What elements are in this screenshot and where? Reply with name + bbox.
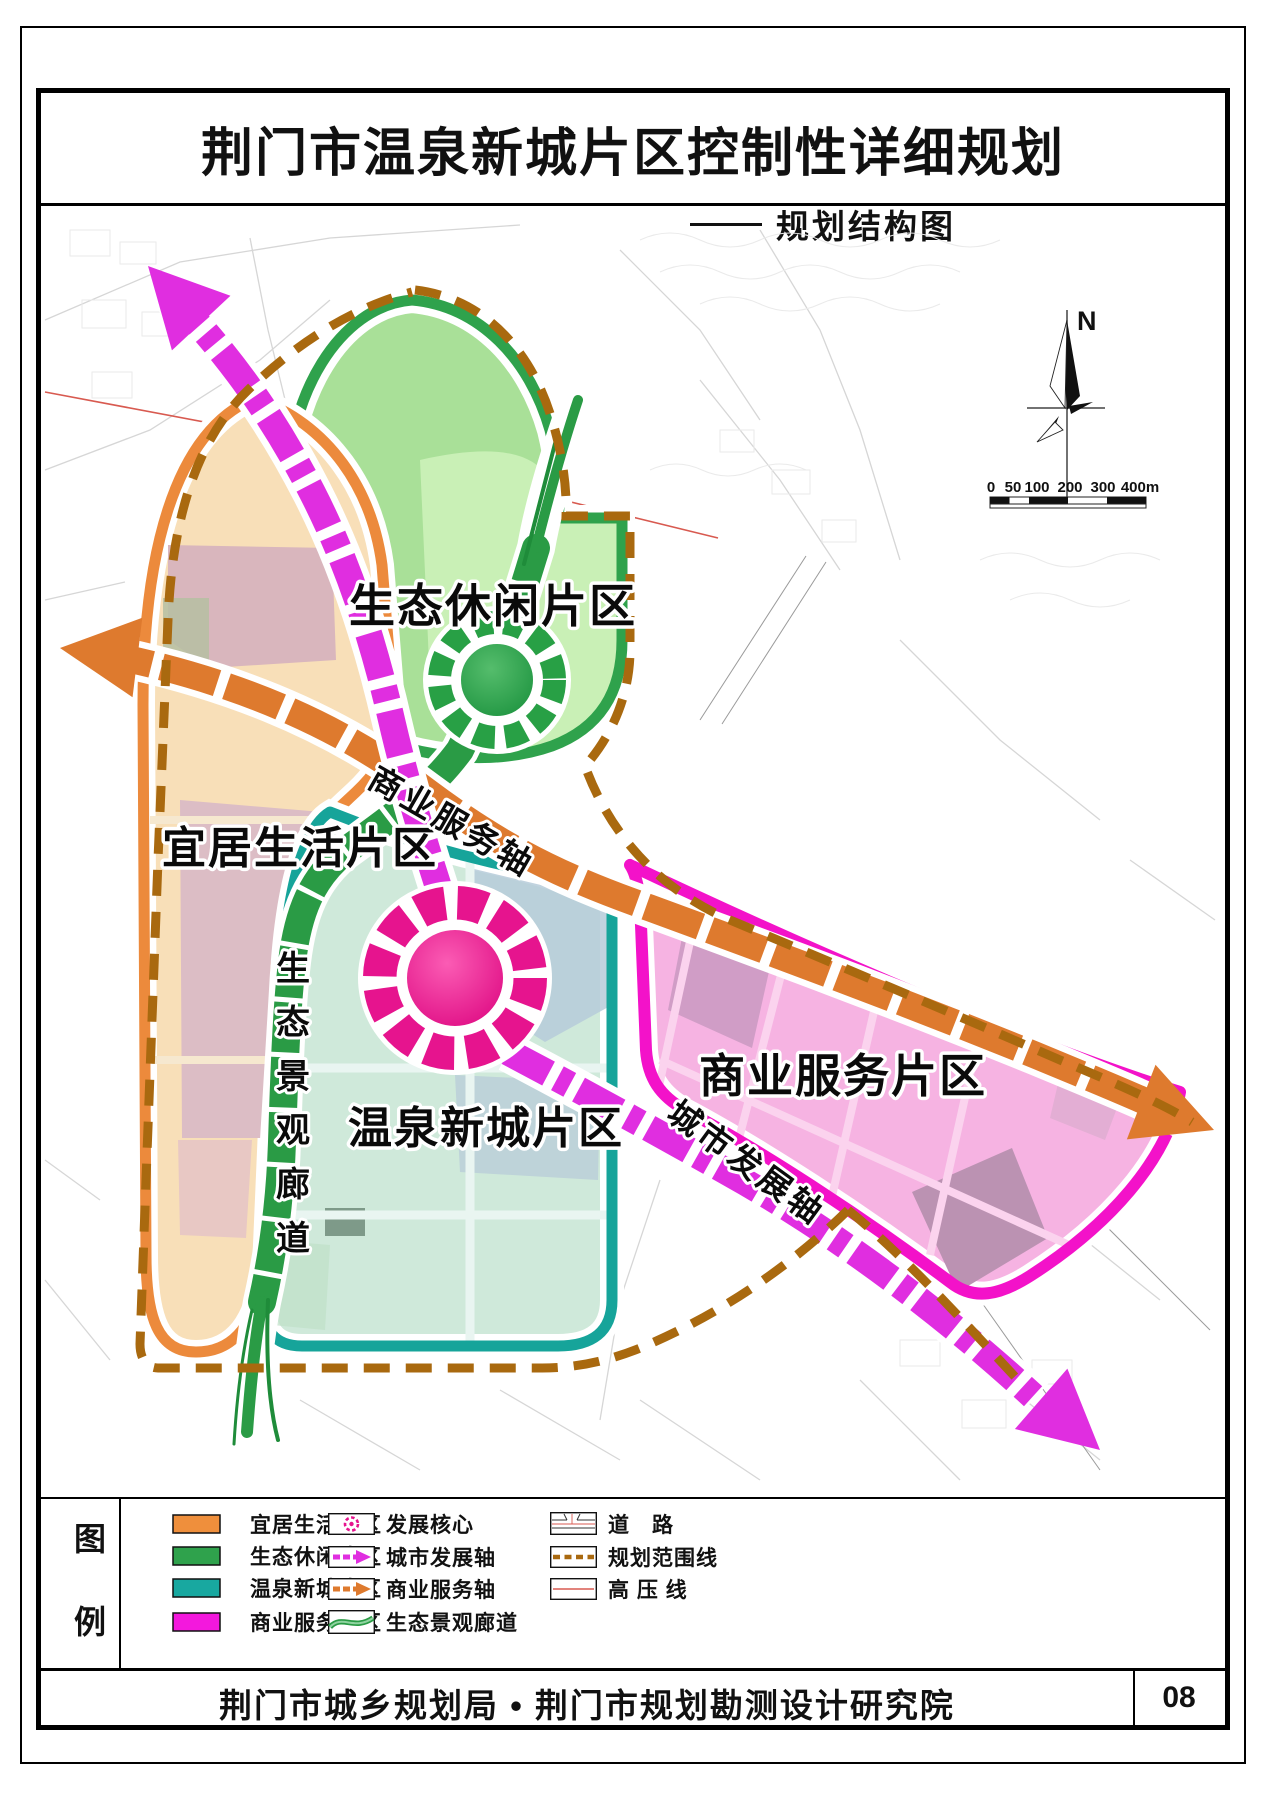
scale-tick-400: 400m [1121,479,1159,496]
legend-label-development-axis: 城市发展轴 [386,1546,496,1568]
legend-label-corridor: 生态景观廊道 [386,1611,518,1633]
zone-label-commercial: 商业服务片区 [699,1050,987,1102]
legend-label-development-core: 发展核心 [386,1513,474,1535]
zone-label-hotspring: 温泉新城片区 [348,1104,624,1153]
legend-icon-corridor [328,1610,375,1634]
development-core-symbol [358,881,552,1075]
scale-tick-100: 100 [1024,479,1049,496]
zone-label-eco: 生态休闲片区 [349,580,637,632]
svg-text:态: 态 [276,1004,310,1042]
scale-tick-200: 200 [1057,479,1082,496]
legend-swatch-hotspring [172,1578,221,1598]
legend-title-char-2: 例 [74,1597,106,1643]
svg-text:廊: 廊 [276,1166,310,1204]
legend-icon-commercial-axis [328,1578,375,1600]
legend-icon-high-voltage [550,1578,597,1600]
legend-icon-road [550,1512,597,1535]
footer-organization: 荆门市城乡规划局 • 荆门市规划勘测设计研究院 [41,1679,1133,1727]
legend-title-divider [119,1499,121,1668]
legend-label-boundary: 规划范围线 [608,1546,718,1568]
north-label: N [1077,306,1097,336]
page-number: 08 [1135,1681,1223,1715]
legend-icon-development-axis [328,1546,375,1568]
legend-title-char-1: 图 [74,1514,106,1560]
legend-label-commercial-axis: 商业服务轴 [386,1578,496,1600]
legend-label-high-voltage: 高 压 线 [608,1578,688,1600]
footer-top-rule [41,1668,1225,1671]
legend-label-road: 道 路 [608,1513,674,1535]
legend-icon-boundary [550,1546,597,1568]
legend-swatch-eco [172,1546,221,1566]
scale-tick-300: 300 [1090,479,1115,496]
legend-icon-development-core [328,1513,375,1535]
svg-text:道: 道 [276,1220,310,1258]
scale-tick-0: 0 [987,479,995,496]
svg-text:观: 观 [276,1112,310,1150]
scale-bar: 0 50 100 200 300 400m [987,479,1159,508]
plan-sheet: 荆门市温泉新城片区控制性详细规划 规划结构图 [0,0,1267,1797]
zone-label-livable: 宜居生活片区 [162,824,438,873]
title-bar: 荆门市温泉新城片区控制性详细规划 [41,93,1225,203]
svg-text:生: 生 [276,950,310,988]
north-compass: N [1027,306,1105,504]
scale-tick-50: 50 [1005,479,1022,496]
planning-map: N 0 50 100 200 300 400m 生态休闲片区 宜居生活片区 温泉… [38,206,1228,1496]
svg-text:景: 景 [276,1058,310,1096]
commercial-axis-arrow-west [55,608,142,697]
page-title: 荆门市温泉新城片区控制性详细规划 [201,111,1065,186]
legend-top-rule [41,1497,1225,1499]
legend-swatch-livable [172,1514,221,1534]
legend-swatch-commercial [172,1612,221,1632]
